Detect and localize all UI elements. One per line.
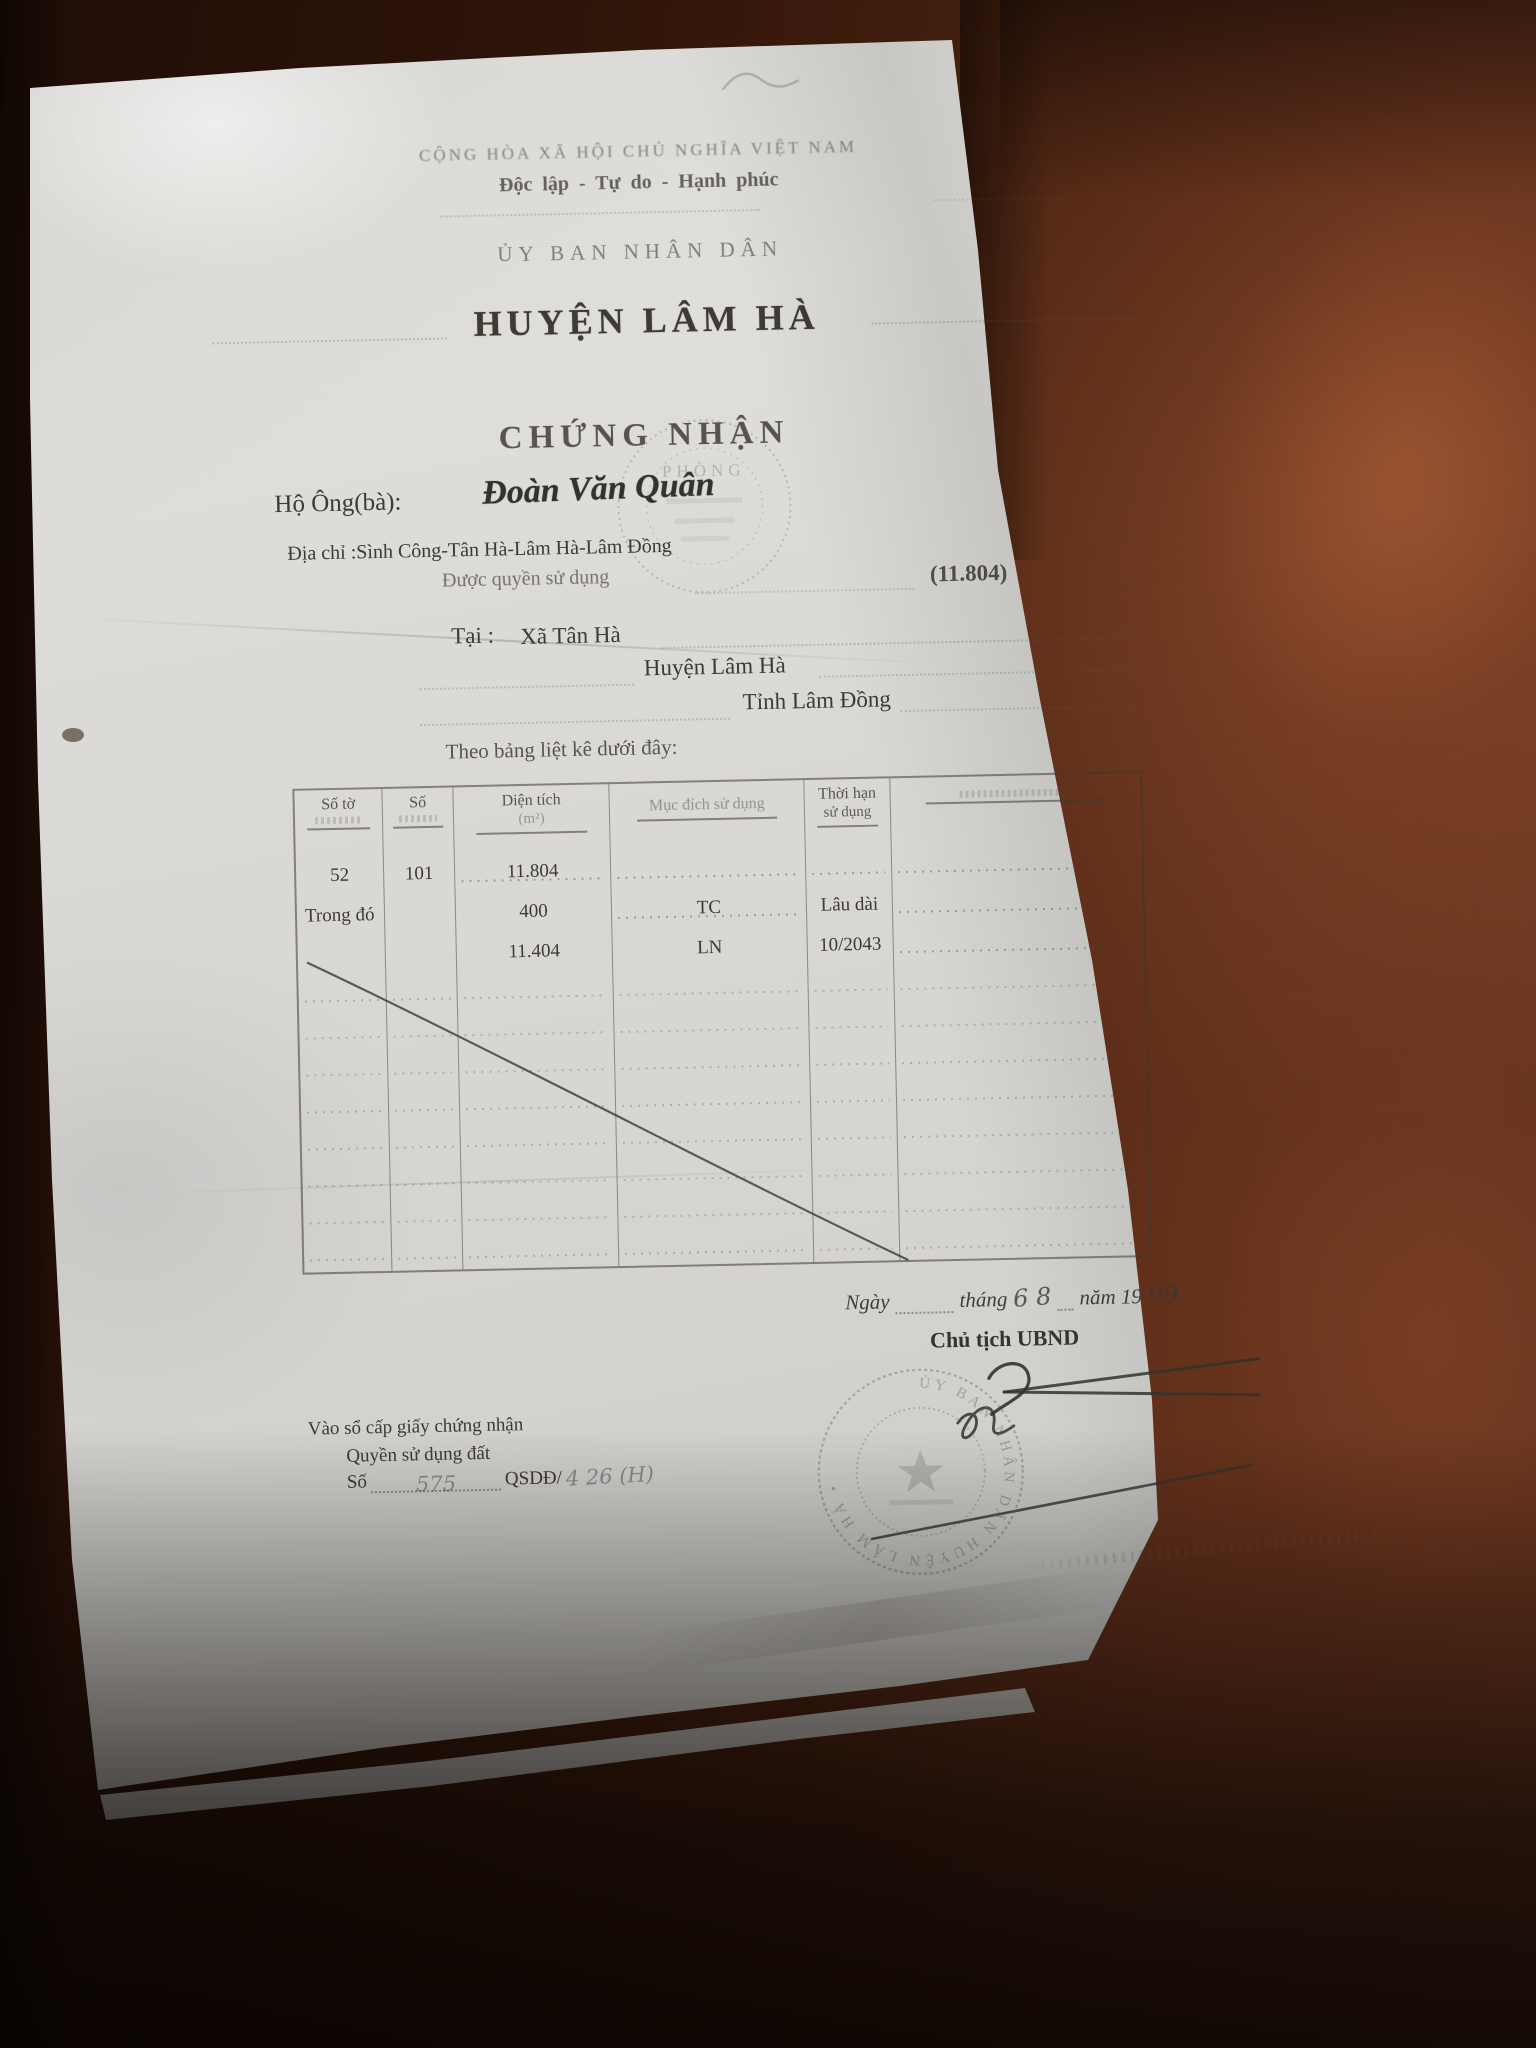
header-subtext: sử dụng (823, 804, 871, 822)
cell-so-to: Trong đó (297, 895, 386, 937)
header-rule (307, 827, 370, 830)
empty-cell (389, 1084, 461, 1122)
empty-cell (390, 1158, 462, 1196)
empty-cell (388, 1047, 460, 1085)
date-line: Ngày tháng 6 8 năm 19 99. (845, 1280, 1186, 1315)
faded-smudge (959, 789, 1072, 798)
empty-cell (810, 1038, 897, 1077)
cell-thoi-han: Lâu dài (806, 884, 893, 926)
photo-canvas: CỘNG HÒA XÃ HỘI CHỦ NGHĨA VIỆT NAM Độc l… (0, 0, 1536, 2048)
granted-area-value: (11.804) (930, 560, 1008, 588)
date-gap (1057, 1291, 1073, 1311)
cell-so-to (297, 935, 386, 977)
empty-cell (895, 996, 1146, 1038)
empty-cell (808, 964, 895, 1003)
dotted-leader (661, 637, 1131, 649)
dotted-leader (900, 705, 1135, 712)
at-label: Tại : (451, 623, 494, 650)
empty-cell (300, 1049, 389, 1088)
empty-cell (304, 1234, 393, 1273)
empty-cell (459, 1044, 616, 1084)
date-year-label: năm 19 (1079, 1284, 1142, 1310)
empty-cell (301, 1123, 390, 1162)
province-value: Tỉnh Lâm Đồng (742, 686, 891, 715)
empty-cell (460, 1118, 617, 1158)
cell-thoi-han (806, 844, 893, 886)
date-year-handwritten: 99. (1147, 1279, 1187, 1310)
empty-cell (299, 1012, 388, 1051)
cell-so-to: 52 (296, 855, 385, 897)
empty-cell (811, 1112, 898, 1151)
empty-cell (386, 973, 458, 1011)
cell-ghi-chu (893, 919, 1144, 964)
empty-cell (298, 975, 387, 1014)
dotted-rule (439, 209, 759, 218)
header-rule (476, 831, 588, 835)
district-value: Huyện Lâm Hà (644, 652, 786, 681)
empty-cell (391, 1195, 463, 1233)
cell-muc-dich: LN (612, 926, 808, 970)
faded-smudge (399, 815, 438, 823)
header-rule (637, 817, 777, 822)
empty-cell (814, 1223, 901, 1262)
cell-so (385, 893, 457, 934)
header-rule (926, 799, 1106, 805)
date-month-label: tháng (959, 1287, 1007, 1313)
header-dien-tich: Diện tích(m²) (453, 784, 610, 853)
empty-cell (899, 1181, 1150, 1223)
national-motto-line2: Độc lập - Tự do - Hạnh phúc (314, 165, 964, 202)
date-day-label: Ngày (845, 1289, 890, 1315)
empty-cell (813, 1186, 900, 1225)
pencil-scribble (716, 54, 813, 108)
empty-cell (392, 1232, 464, 1270)
empty-cell (616, 1077, 812, 1118)
header-rule (393, 826, 443, 829)
faded-smudge (315, 816, 363, 824)
header-text: Diện tích (501, 791, 560, 810)
cell-so (385, 933, 457, 974)
cell-ghi-chu (892, 879, 1143, 924)
header-so-to: Số tờ (294, 789, 383, 857)
date-day-blank (895, 1293, 953, 1314)
empty-cell (389, 1121, 461, 1159)
empty-cell (458, 1007, 615, 1047)
cell-thoi-han: 10/2043 (807, 924, 894, 966)
empty-cell (460, 1081, 617, 1121)
empty-cell (302, 1160, 391, 1199)
header-text: Thời hạn (818, 785, 876, 804)
empty-cell (303, 1197, 392, 1236)
date-month-handwritten: 6 8 (1012, 1282, 1052, 1313)
grant-label: Được quyền sử dụng (442, 566, 610, 592)
header-so: Số (382, 787, 454, 854)
empty-cell (617, 1151, 813, 1192)
empty-cell (387, 1010, 459, 1048)
empty-cell (462, 1192, 619, 1232)
dotted-leader (419, 684, 634, 691)
empty-cell (898, 1144, 1149, 1186)
empty-cell (463, 1229, 620, 1269)
cell-dien-tich: 400 (456, 890, 613, 933)
cell-so: 101 (384, 853, 456, 894)
empty-cell (614, 1003, 810, 1044)
empty-cell (619, 1225, 815, 1266)
national-motto-line1: CỘNG HÒA XÃ HỘI CHỦ NGHĨA VIỆT NAM (313, 135, 963, 169)
dotted-leader (819, 669, 1134, 678)
empty-cell (457, 970, 614, 1010)
header-rule (817, 825, 878, 828)
table-intro: Theo bảng liệt kê dưới đây: (445, 735, 677, 765)
empty-cell (896, 1033, 1147, 1075)
header-text: Mục đích sử dụng (649, 795, 765, 815)
empty-cell (618, 1188, 814, 1229)
holder-label: Hộ Ông(bà): (274, 488, 402, 519)
dotted-rule (934, 195, 1124, 201)
header-ghi-chu (890, 773, 1141, 844)
commune-value: Xã Tân Hà (520, 622, 621, 650)
empty-cell (897, 1107, 1148, 1149)
empty-cell (613, 966, 809, 1007)
header-text: Số tờ (321, 796, 355, 815)
parcel-table: Số tờ Số Diện tích(m²) Mục đích sử dụng … (292, 771, 1152, 1275)
empty-cell (461, 1155, 618, 1195)
cell-dien-tich: 11.404 (456, 930, 613, 973)
empty-cell (896, 1070, 1147, 1112)
empty-cell (615, 1040, 811, 1081)
empty-cell (894, 959, 1145, 1001)
cell-muc-dich: TC (612, 886, 808, 930)
dotted-leader (420, 718, 730, 726)
issuer-label: ỦY BAN NHÂN DÂN (315, 233, 965, 272)
empty-cell (810, 1075, 897, 1114)
wood-bottom-shadow (0, 1428, 1536, 2048)
cell-dien-tich: 11.804 (455, 850, 612, 893)
header-thoi-han: Thời hạnsử dụng (804, 778, 891, 846)
empty-cell (809, 1001, 896, 1040)
cell-muc-dich (611, 846, 807, 890)
cell-ghi-chu (892, 839, 1143, 884)
empty-cell (900, 1218, 1151, 1260)
header-text: Số (409, 794, 426, 812)
empty-cell (616, 1114, 812, 1155)
empty-cell (812, 1149, 899, 1188)
empty-cell (301, 1086, 390, 1125)
header-subtext: (m²) (518, 811, 545, 829)
issuer-name: HUYỆN LÂM HÀ (266, 291, 1027, 349)
header-muc-dich: Mục đích sử dụng (609, 780, 805, 850)
